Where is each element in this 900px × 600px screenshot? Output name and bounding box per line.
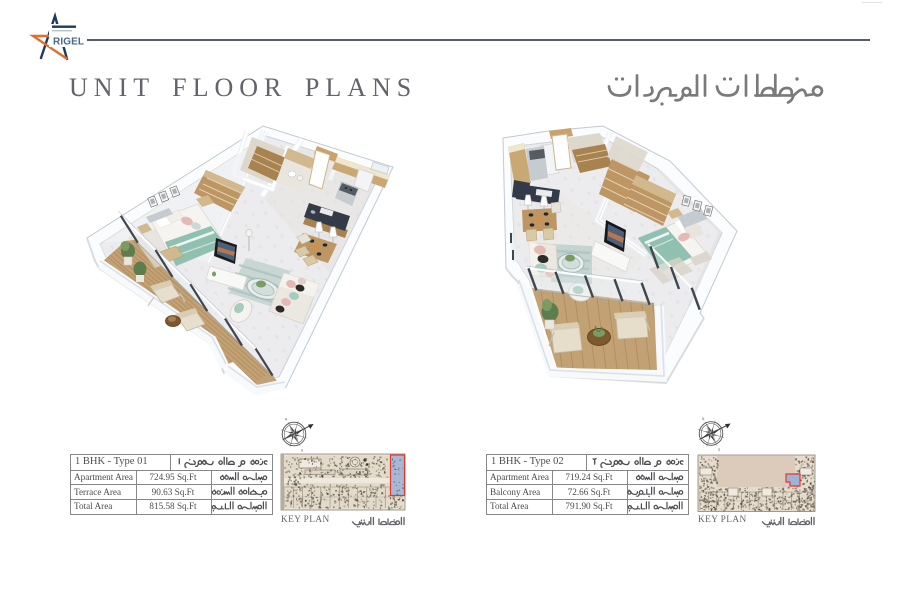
svg-text:N: N [285, 418, 288, 422]
svg-text:S: S [301, 449, 303, 453]
